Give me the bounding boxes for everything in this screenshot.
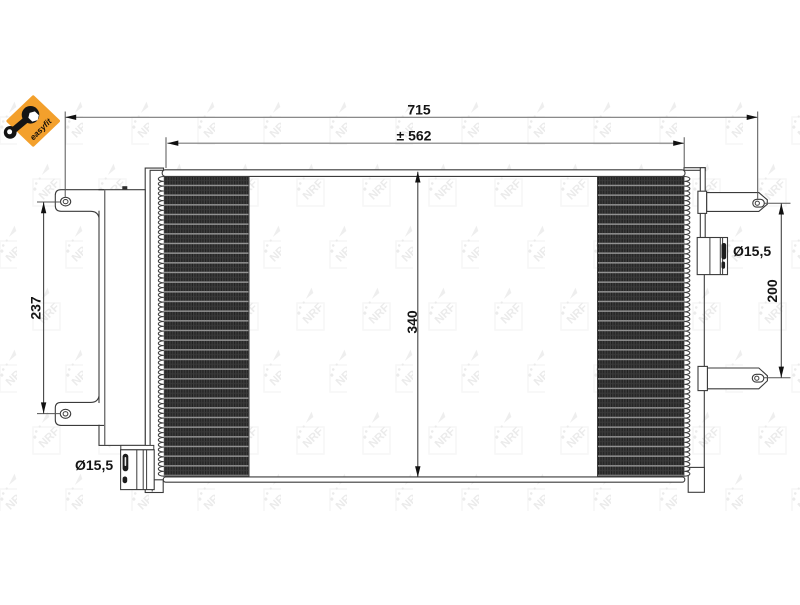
svg-text:Ø15,5: Ø15,5 xyxy=(75,457,113,473)
svg-text:340: 340 xyxy=(404,310,420,334)
svg-text:Ø15,5: Ø15,5 xyxy=(733,243,771,259)
svg-text:237: 237 xyxy=(28,296,44,320)
svg-text:200: 200 xyxy=(764,279,780,303)
svg-text:715: 715 xyxy=(407,102,431,118)
svg-text:± 562: ± 562 xyxy=(397,127,432,143)
